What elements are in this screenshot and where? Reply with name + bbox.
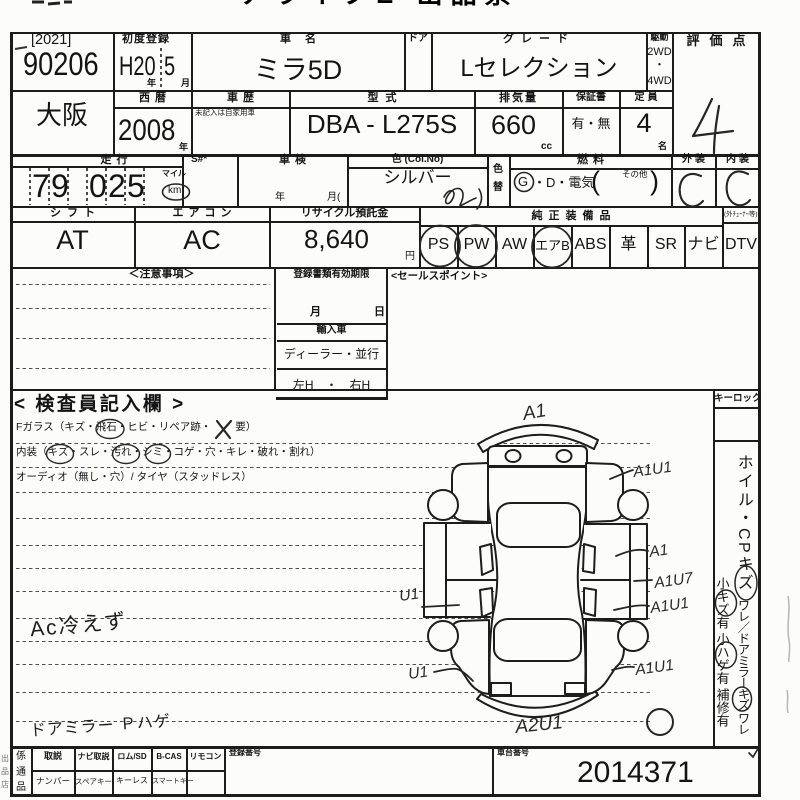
svg-text:A1U1: A1U1 xyxy=(633,657,675,679)
svg-text:U1: U1 xyxy=(398,585,420,605)
svg-text:A1: A1 xyxy=(647,541,669,561)
svg-text:A1U1: A1U1 xyxy=(631,459,673,481)
svg-text:A1U1: A1U1 xyxy=(648,595,690,617)
svg-text:A2U1: A2U1 xyxy=(513,712,563,738)
svg-text:A1: A1 xyxy=(520,400,548,425)
svg-text:U1: U1 xyxy=(407,663,429,683)
svg-text:A1U7: A1U7 xyxy=(652,570,695,593)
